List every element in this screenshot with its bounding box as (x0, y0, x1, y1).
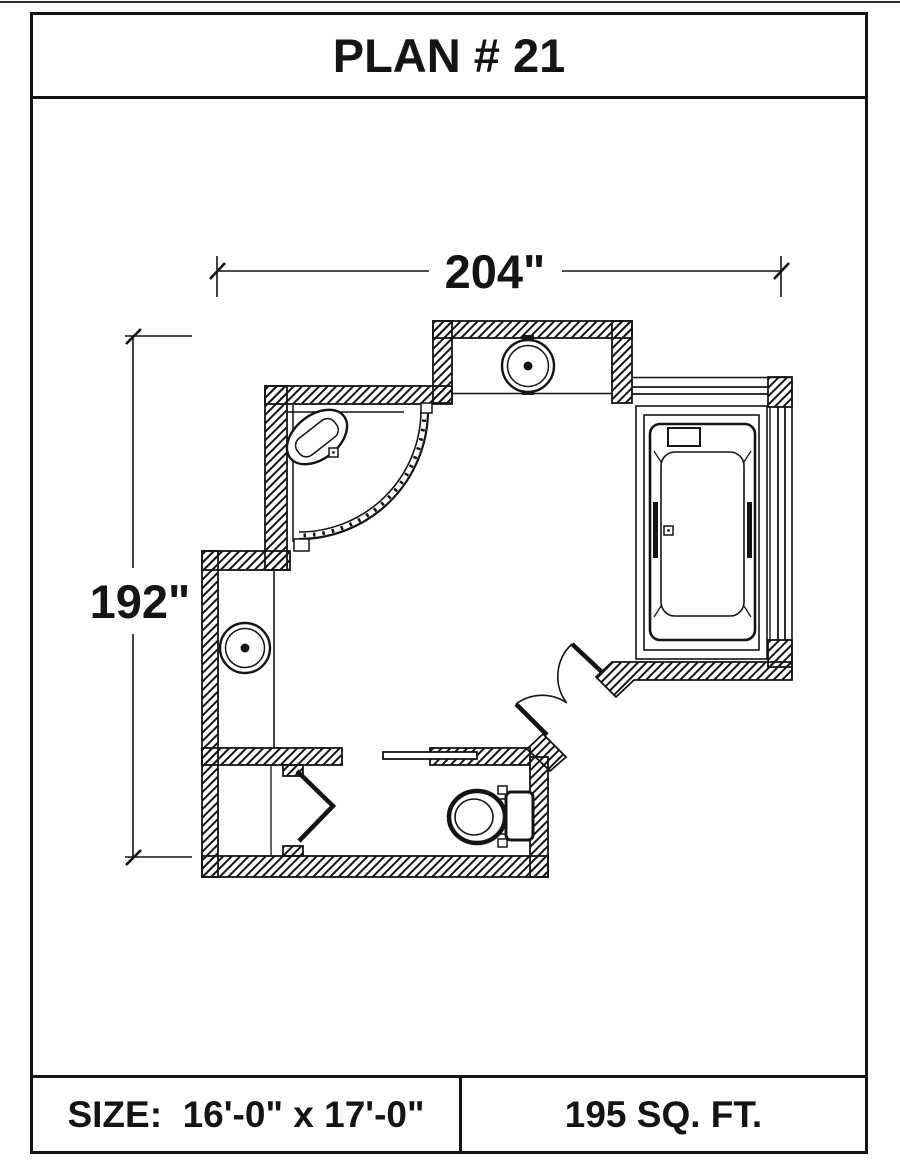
toilet (449, 786, 533, 847)
entry-door-swing-left (516, 695, 567, 704)
top-wall (265, 386, 452, 404)
bottom-wall (202, 856, 548, 877)
dim-width-label: 204" (445, 245, 546, 298)
alcove-right-wall (612, 321, 632, 403)
closet-door (297, 771, 333, 841)
left-sink (220, 623, 270, 673)
corner-shower (277, 399, 432, 551)
counters (271, 394, 612, 857)
entry-doors (516, 644, 603, 735)
corner-block-bottom-right (768, 640, 792, 667)
towel-bar (383, 752, 477, 759)
left-sink-drain (241, 644, 250, 653)
shower-seat (277, 399, 358, 476)
left-wall (202, 551, 218, 877)
bathtub (636, 406, 767, 659)
dimension-vertical: 192" (90, 329, 192, 865)
floor-plan-drawing: 204" 192" (0, 0, 900, 1165)
top-sink (502, 335, 554, 395)
closet-door-jamb-bottom (283, 846, 303, 856)
dimension-horizontal: 204" (210, 245, 789, 298)
shower-jamb-bottom (294, 539, 309, 551)
tub-faucet (668, 428, 700, 446)
top-sink-drain (524, 362, 533, 371)
entry-door-leaf-right (572, 644, 603, 673)
floor-plan-sheet: PLAN # 21 SIZE: 16'-0" x 17'-0" 195 SQ. … (0, 0, 900, 1165)
tub-bottom-wall (596, 662, 792, 697)
shower-jamb-top (421, 403, 432, 413)
shower-left-wall (265, 386, 287, 570)
closet-top-wall (202, 748, 342, 765)
entry-door-leaf-left (516, 704, 547, 735)
corner-block-top-right (768, 377, 792, 407)
toilet-tank (506, 792, 533, 840)
dim-height-label: 192" (90, 575, 191, 628)
entry-door-swing-right (558, 644, 572, 702)
